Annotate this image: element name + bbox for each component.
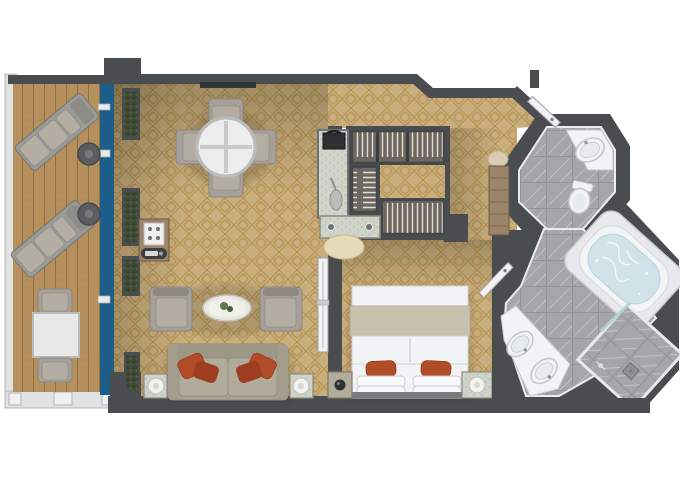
balcony-glass-wall (100, 84, 114, 395)
armchair-left (150, 287, 192, 331)
pillow (413, 376, 461, 387)
balcony (5, 74, 118, 408)
hanging-rail-bottom (382, 200, 444, 234)
square-table (33, 313, 79, 357)
railing-post (54, 392, 72, 405)
balcony-top-wall (8, 75, 104, 84)
table-center (85, 210, 93, 218)
nightstand-right (462, 372, 492, 398)
stool (324, 235, 364, 259)
hanging-rail-left (352, 167, 377, 212)
wall-stub (444, 214, 468, 242)
lamp-table-right (290, 374, 313, 398)
suite-floorplan (0, 0, 680, 486)
bolster-pillow (366, 360, 397, 378)
walk-in-closet (318, 126, 468, 259)
vase (335, 380, 346, 391)
bottom-wall-right (492, 398, 645, 413)
glass-door-frame (98, 296, 110, 303)
deck-chair-seat (42, 293, 68, 311)
entry-post (530, 70, 539, 88)
plant (124, 260, 138, 292)
hall-cabinet (489, 166, 509, 235)
counter-sink (330, 190, 342, 210)
lamp-table-left (144, 374, 167, 398)
plant-centerpiece (220, 302, 228, 310)
pillow (357, 376, 405, 387)
deck-chair-seat (42, 362, 68, 380)
bolster-pillow (421, 360, 452, 378)
armchair-right (260, 287, 302, 331)
pantry-counter (318, 130, 348, 218)
hall-stool (488, 151, 508, 167)
bedroom-sliding-door (317, 258, 329, 352)
sofa (168, 344, 288, 400)
glass-door-frame (98, 104, 110, 110)
glass-tray (144, 223, 164, 245)
railing-post (9, 393, 21, 405)
plant (126, 356, 138, 390)
plant (124, 92, 138, 136)
headboard (352, 392, 468, 398)
bed-throw (350, 306, 470, 336)
safe (323, 133, 345, 149)
hanging-rail-top (352, 131, 444, 163)
bed (350, 286, 470, 398)
nightstand-left (328, 372, 352, 398)
bottle (145, 251, 158, 256)
table-center (85, 150, 93, 158)
wall-tv (200, 82, 256, 88)
bathroom-block (492, 114, 680, 413)
coffee-table (203, 295, 251, 321)
bar-cabinet (139, 219, 169, 261)
floorplan-canvas (0, 0, 680, 486)
plant (124, 192, 138, 242)
closet-floor (380, 165, 445, 198)
